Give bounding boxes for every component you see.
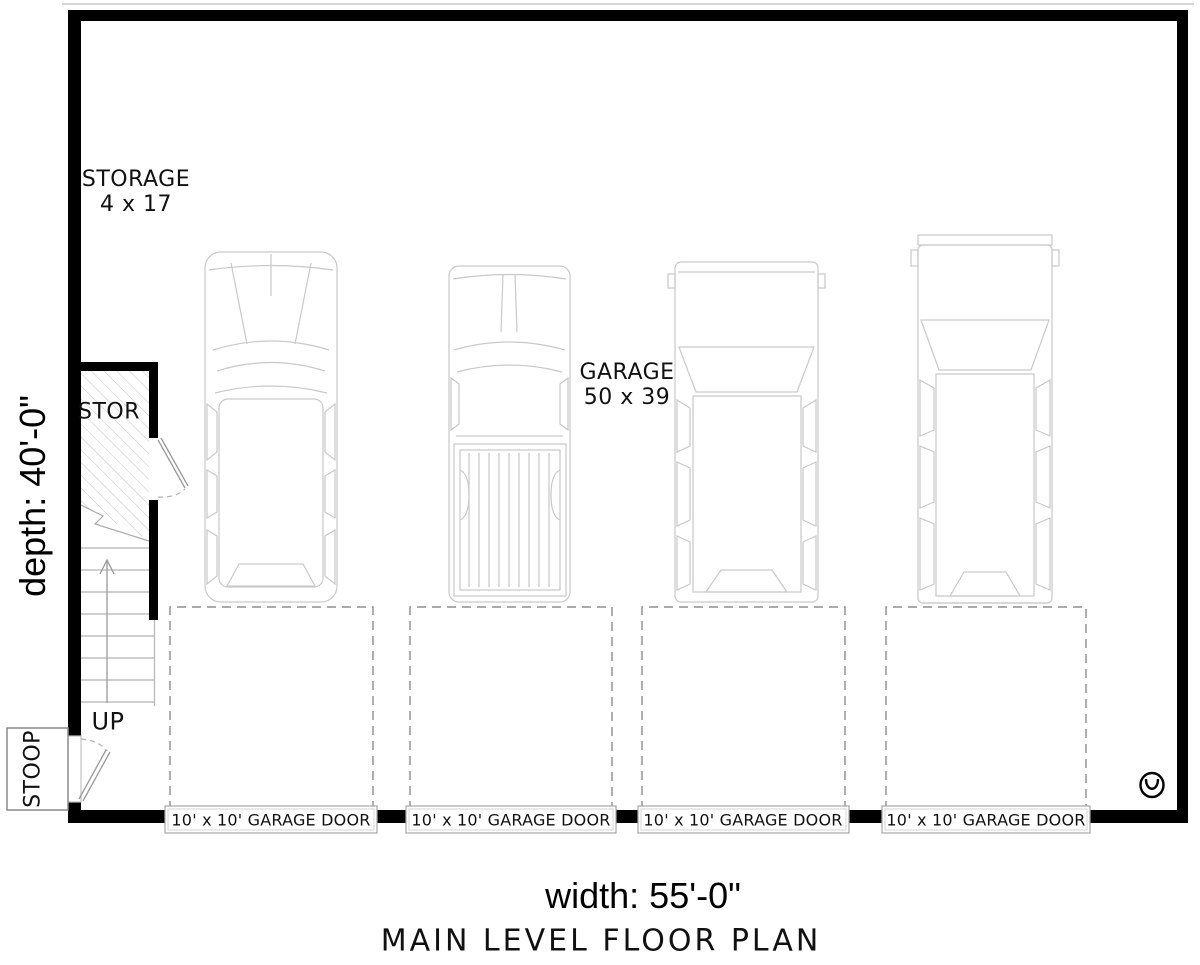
vehicle-pickup-truck (449, 266, 570, 602)
floor-plan: STORAGE 4 x 17 GARAGE 50 x 39 STOR UP ST… (0, 0, 1200, 965)
stor-closet-label: STOR (78, 400, 140, 425)
storage-room-label: STORAGE 4 x 17 (82, 167, 190, 217)
garage-room-size: 50 x 39 (579, 385, 674, 410)
wall-top (68, 10, 1188, 21)
wall-closet-top (81, 362, 158, 371)
storage-room-name: STORAGE (82, 167, 190, 192)
wall-right (1177, 10, 1188, 823)
depth-dimension: depth: 40'-0" (12, 395, 54, 597)
wall-closet-right-upper (149, 362, 158, 438)
stoop-label: STOOP (21, 730, 46, 808)
vehicle-box-van (911, 235, 1059, 603)
closet-door (158, 438, 188, 497)
garage-door-label-4: 10' x 10' GARAGE DOOR (886, 811, 1085, 830)
entry-door (79, 739, 110, 801)
garage-door-label-3: 10' x 10' GARAGE DOOR (643, 811, 842, 830)
vehicle-van (668, 262, 825, 602)
vehicle-suv (205, 252, 337, 602)
garage-door-label-1: 10' x 10' GARAGE DOOR (171, 811, 370, 830)
walls (68, 10, 1188, 823)
garage-room-name: GARAGE (579, 360, 674, 385)
garage-room-label: GARAGE 50 x 39 (579, 360, 674, 410)
wall-left-upper (68, 10, 81, 737)
width-dimension: width: 55'-0" (545, 875, 741, 917)
brand-logo-icon (1141, 773, 1164, 797)
garage-door-label-2: 10' x 10' GARAGE DOOR (411, 811, 610, 830)
wall-closet-right-lower (149, 500, 158, 620)
storage-closet-hatch (81, 371, 149, 540)
staircase (81, 548, 155, 706)
plan-title: MAIN LEVEL FLOOR PLAN (381, 924, 822, 959)
stair-up-arrow (100, 560, 114, 703)
storage-room-size: 4 x 17 (82, 192, 190, 217)
stairs-up-label: UP (91, 710, 124, 735)
garage-door-aprons (170, 607, 1086, 810)
